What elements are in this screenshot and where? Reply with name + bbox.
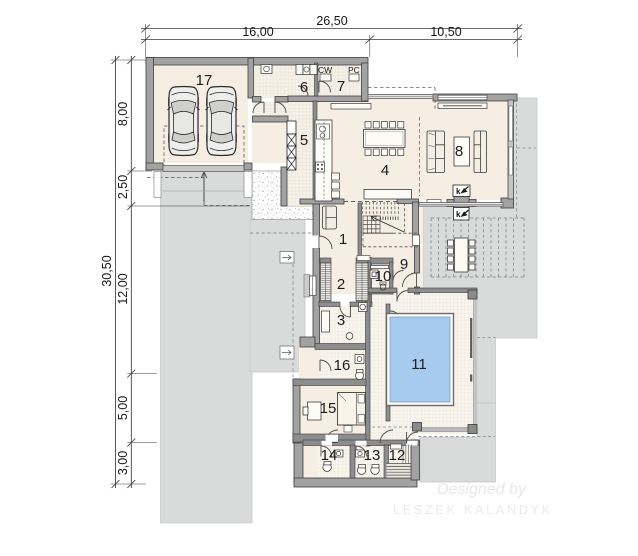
svg-text:10: 10: [375, 268, 392, 285]
svg-text:Designed by: Designed by: [437, 481, 527, 498]
svg-text:5,00: 5,00: [116, 396, 130, 420]
svg-text:LESZEK KALANDYK: LESZEK KALANDYK: [393, 503, 553, 517]
svg-text:PC: PC: [348, 65, 360, 75]
svg-text:k: k: [456, 210, 461, 219]
svg-text:2: 2: [337, 276, 345, 293]
svg-text:5: 5: [300, 132, 308, 149]
svg-text:16,00: 16,00: [242, 25, 273, 39]
svg-text:26,50: 26,50: [316, 14, 347, 28]
svg-text:k: k: [456, 187, 461, 196]
svg-text:16: 16: [334, 357, 351, 374]
svg-text:13: 13: [364, 447, 381, 464]
svg-text:CW: CW: [318, 65, 332, 75]
svg-text:2,50: 2,50: [116, 175, 130, 199]
svg-text:6: 6: [300, 79, 308, 96]
svg-text:7: 7: [337, 78, 345, 95]
svg-text:14: 14: [321, 447, 338, 464]
svg-text:30,50: 30,50: [100, 255, 114, 286]
svg-text:12,00: 12,00: [116, 273, 130, 304]
svg-text:10,50: 10,50: [430, 25, 461, 39]
svg-text:3,00: 3,00: [116, 451, 130, 475]
svg-text:3: 3: [337, 312, 345, 329]
svg-text:9: 9: [400, 256, 408, 273]
svg-text:15: 15: [320, 400, 337, 417]
svg-text:17: 17: [196, 72, 213, 89]
svg-text:8: 8: [455, 143, 463, 160]
svg-text:4: 4: [381, 162, 389, 179]
svg-text:1: 1: [339, 231, 347, 248]
svg-text:8,00: 8,00: [116, 102, 130, 126]
svg-text:12: 12: [389, 447, 406, 464]
svg-text:11: 11: [411, 356, 427, 373]
